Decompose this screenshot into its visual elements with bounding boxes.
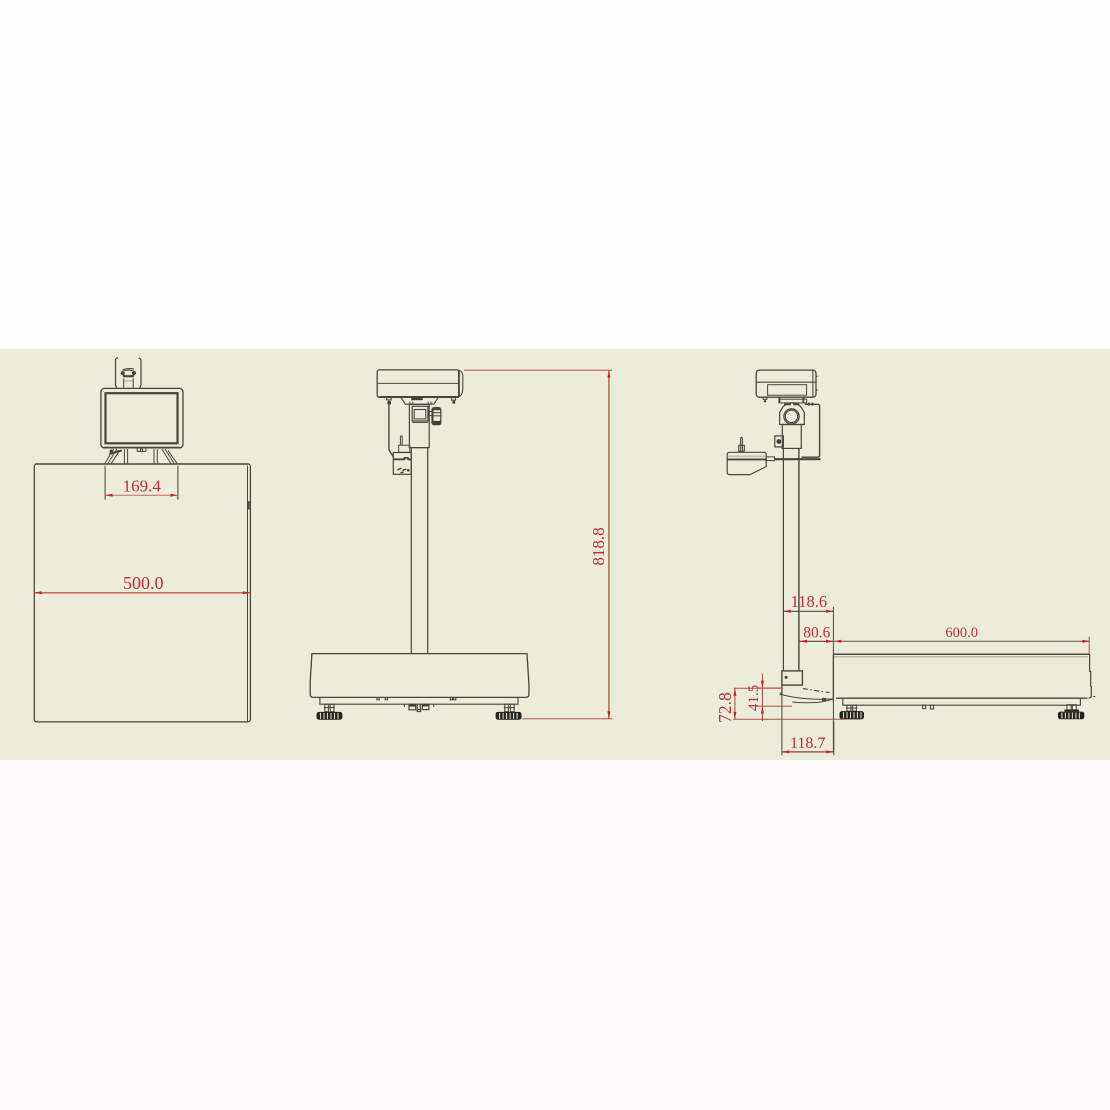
svg-text:118.7: 118.7 xyxy=(790,735,825,752)
svg-text:72.8: 72.8 xyxy=(715,692,735,723)
svg-text:118.6: 118.6 xyxy=(791,592,828,611)
svg-text:818.8: 818.8 xyxy=(589,527,608,565)
svg-text:500.0: 500.0 xyxy=(123,573,164,593)
svg-text:169.4: 169.4 xyxy=(123,477,162,496)
svg-text:80.6: 80.6 xyxy=(803,624,830,641)
svg-text:41.5: 41.5 xyxy=(746,685,762,711)
svg-text:600.0: 600.0 xyxy=(945,625,978,641)
